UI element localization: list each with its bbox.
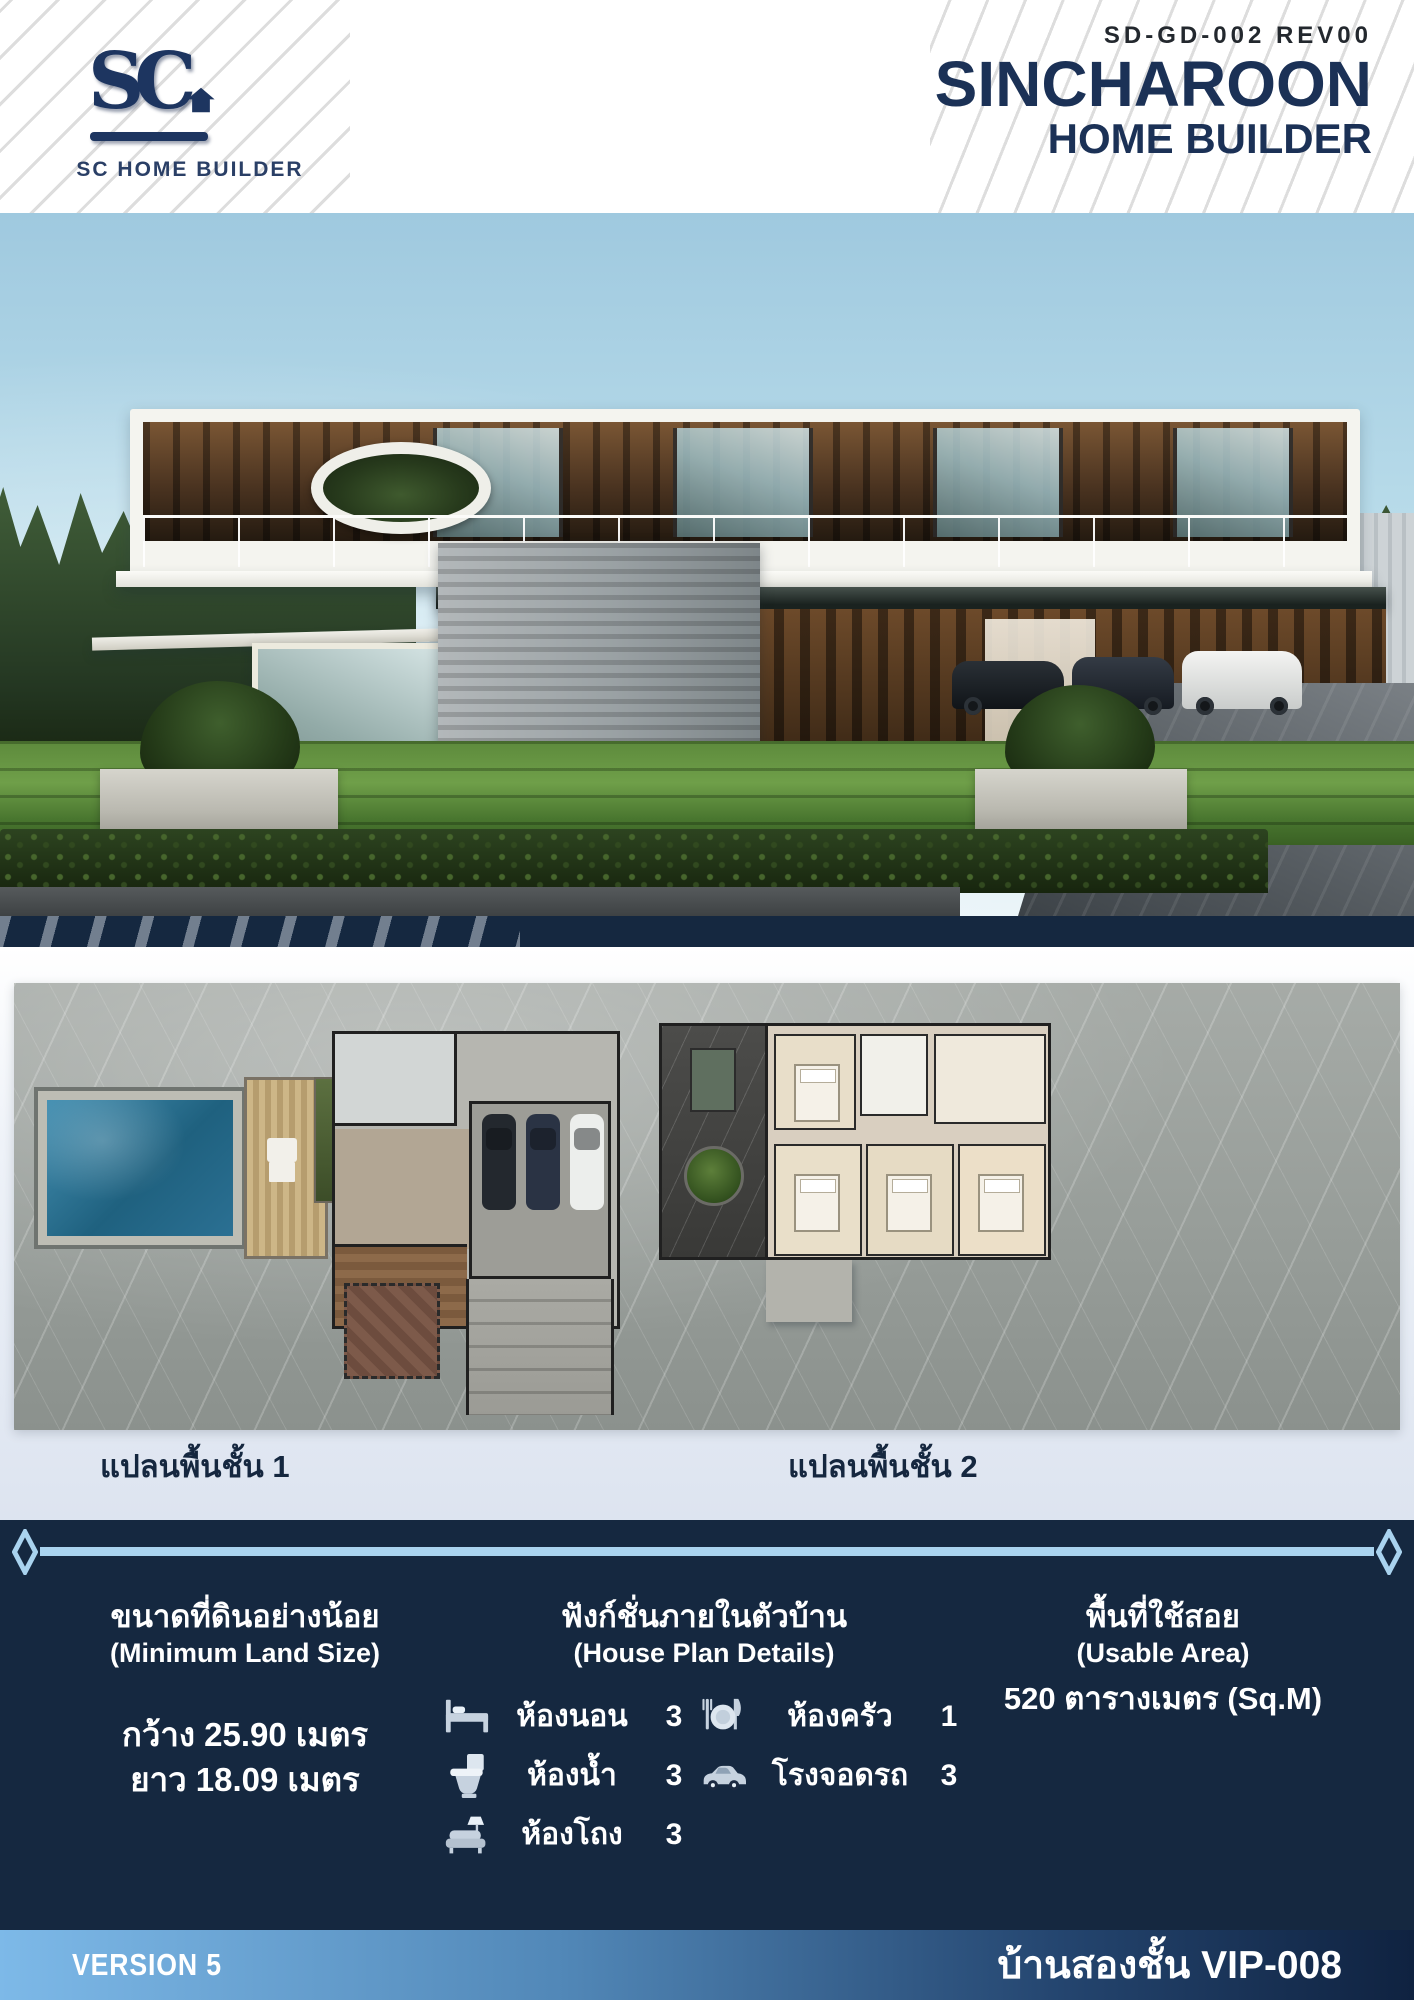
deck-chair [267, 1138, 297, 1162]
floor-plans-section: แปลนพื้นชั้น 1 แปลนพื้นชั้น 2 [0, 947, 1414, 1520]
garage-car [570, 1114, 604, 1210]
plan2-dining-table [690, 1048, 736, 1112]
garage-car [482, 1114, 516, 1210]
footer-bar: VERSION 5 บ้านสองชั้น VIP-008 [0, 1930, 1414, 2000]
function-value: 3 [654, 1700, 694, 1734]
floor-plan-image [14, 983, 1400, 1430]
accent-bar [40, 1547, 1374, 1556]
plan1-hall [335, 1129, 475, 1249]
usable-area-column: พื้นที่ใช้สอย (Usable Area) 520 ตารางเมต… [952, 1598, 1374, 1723]
plan2-room [934, 1034, 1046, 1124]
plan1-driveway [466, 1279, 614, 1415]
pool-deck-frame [34, 1087, 246, 1249]
functions-title-th: ฟังก์ชั่นภายในตัวบ้าน [444, 1598, 964, 1637]
house-icon [186, 86, 216, 119]
hedge-row [0, 829, 1268, 893]
walkway [0, 887, 960, 916]
bed [794, 1174, 840, 1232]
specs-section: ขนาดที่ดินอย่างน้อย (Minimum Land Size) … [0, 1520, 1414, 1930]
bed [886, 1174, 932, 1232]
plan2-patio [662, 1026, 768, 1257]
sofa-icon [444, 1813, 490, 1857]
area-value: 520 ตารางเมตร (Sq.M) [952, 1673, 1374, 1723]
area-title-th: พื้นที่ใช้สอย [952, 1598, 1374, 1637]
function-value: 3 [654, 1818, 694, 1852]
divider-band-stripes [0, 916, 520, 947]
land-size-title-th: ขนาดที่ดินอย่างน้อย [40, 1598, 450, 1637]
bed [978, 1174, 1024, 1232]
divider-band [0, 916, 1414, 947]
logo-monogram: SC [88, 36, 186, 127]
brand-title: SINCHAROON [935, 52, 1372, 116]
function-label: โรงจอดรถ [752, 1752, 928, 1799]
garage-car [526, 1114, 560, 1210]
land-size-column: ขนาดที่ดินอย่างน้อย (Minimum Land Size) … [40, 1598, 450, 1802]
function-label: ห้องน้ำ [496, 1752, 648, 1799]
brand-subtitle: HOME BUILDER [935, 118, 1372, 160]
plan2-bedroom [774, 1144, 862, 1256]
function-label: ห้องครัว [752, 1693, 928, 1740]
plan2-bathroom [860, 1034, 928, 1116]
land-width-value: กว้าง 25.90 เมตร [40, 1713, 450, 1758]
function-value: 3 [654, 1759, 694, 1793]
swimming-pool [47, 1100, 233, 1236]
kitchen-icon [700, 1695, 746, 1739]
plan2-bedroom [958, 1144, 1046, 1256]
land-size-title-en: (Minimum Land Size) [40, 1637, 450, 1669]
version-label: VERSION 5 [72, 1947, 222, 1983]
plan1-garage [469, 1101, 611, 1279]
function-label: ห้องโถง [496, 1811, 648, 1858]
diamond-icon [12, 1529, 38, 1580]
plan2-stair-tab [766, 1260, 852, 1322]
bed-icon [444, 1697, 490, 1737]
diamond-icon [1376, 1529, 1402, 1580]
floor-plan-2-house [659, 1023, 1051, 1260]
brand-block: SD-GD-002 REV00 SINCHAROON HOME BUILDER [935, 22, 1372, 160]
logo-label: SC HOME BUILDER [60, 158, 320, 182]
accent-divider [12, 1528, 1402, 1576]
parked-car-white [1182, 651, 1302, 709]
functions-grid: ห้องนอน 3 ห้องครัว 1 ห้องน้ำ 3 โรงจอดรถ … [444, 1693, 964, 1858]
document-code: SD-GD-002 REV00 [935, 22, 1372, 50]
car-icon [700, 1759, 746, 1793]
plan2-bedroom [866, 1144, 954, 1256]
area-title-en: (Usable Area) [952, 1637, 1374, 1669]
functions-title-en: (House Plan Details) [444, 1637, 964, 1669]
toilet-icon [444, 1753, 490, 1799]
plan2-courtyard-tree [684, 1146, 744, 1206]
logo-underbar [90, 132, 208, 141]
function-value: 3 [934, 1759, 964, 1793]
plan1-label: แปลนพื้นชั้น 1 [100, 1441, 290, 1491]
brochure-page: SC SC HOME BUILDER SD-GD-002 REV00 SINCH… [0, 0, 1414, 2000]
model-label: บ้านสองชั้น VIP-008 [998, 1934, 1342, 1996]
house-functions-column: ฟังก์ชั่นภายในตัวบ้าน (House Plan Detail… [444, 1598, 964, 1858]
plan2-bedroom [774, 1034, 856, 1130]
bed [794, 1064, 840, 1122]
plan1-patio [344, 1283, 440, 1379]
land-length-value: ยาว 18.09 เมตร [40, 1758, 450, 1803]
header: SC SC HOME BUILDER SD-GD-002 REV00 SINCH… [0, 0, 1414, 213]
house-exterior-photo [0, 213, 1414, 916]
sc-logo: SC SC HOME BUILDER [58, 40, 318, 190]
plan1-kitchen [335, 1034, 457, 1126]
plan2-label: แปลนพื้นชั้น 2 [788, 1441, 978, 1491]
function-label: ห้องนอน [496, 1693, 648, 1740]
